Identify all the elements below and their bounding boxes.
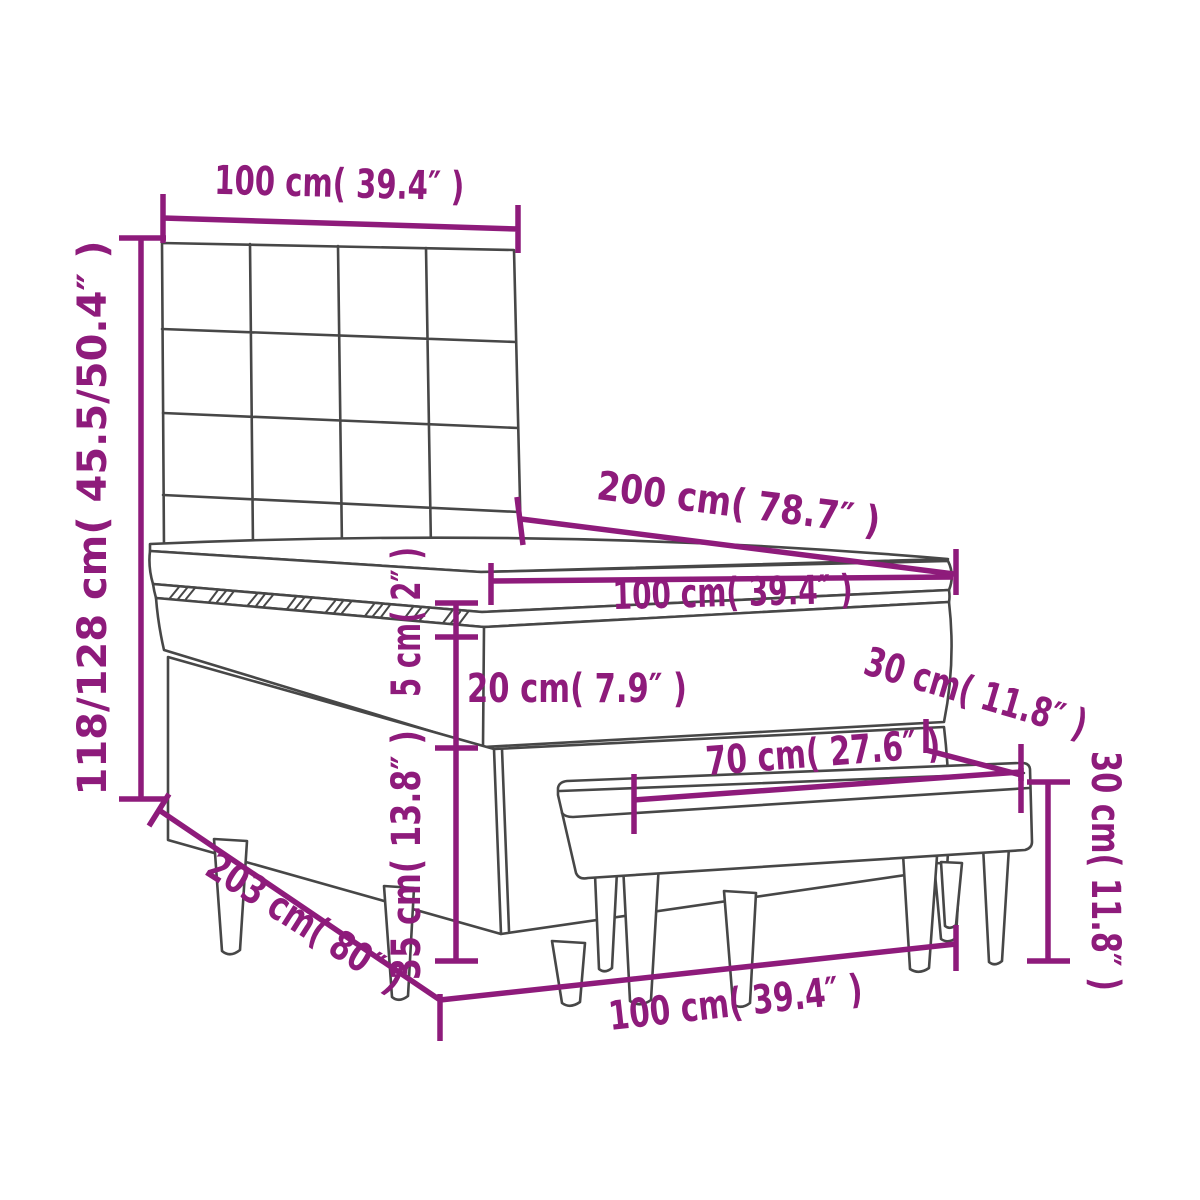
dim-bench-height-line (1027, 782, 1070, 961)
dim-frame-width: 100 cm( 39.4″ ) (440, 925, 956, 1040)
bench-leg-right-end (983, 846, 1009, 964)
bench-seat (558, 763, 1032, 879)
dim-mattress-width-label: 100 cm( 39.4″ ) (612, 567, 853, 619)
dim-bench-height: 30 cm( 11.8″ ) (1027, 751, 1128, 991)
bench-leg-front-right (903, 854, 937, 972)
dim-overall-height-line (119, 238, 166, 799)
dim-headboard-width-label: 100 cm( 39.4″ ) (214, 158, 465, 211)
dim-bench-height-label: 30 cm( 11.8″ ) (1082, 751, 1128, 991)
dim-headboard-width: 100 cm( 39.4″ ) (163, 158, 518, 253)
dim-base-height-label: 35 cm( 13.8″ ) (384, 730, 430, 980)
bed-dimension-diagram: 100 cm( 39.4″ ) 118/128 cm( 45.5/50.4″ )… (0, 0, 1200, 1200)
dim-topper-thickness-label: 5 cm( 2″ ) (384, 547, 430, 697)
dim-overall-height-label: 118/128 cm( 45.5/50.4″ ) (70, 241, 116, 796)
dim-overall-height: 118/128 cm( 45.5/50.4″ ) (70, 238, 166, 799)
bench-leg-rear-right (941, 862, 962, 928)
dim-mattress-thickness-label: 20 cm( 7.9″ ) (467, 666, 687, 712)
bed-leg-corner (552, 941, 585, 1006)
headboard (162, 243, 521, 549)
diagram-canvas: 100 cm( 39.4″ ) 118/128 cm( 45.5/50.4″ )… (0, 0, 1200, 1200)
